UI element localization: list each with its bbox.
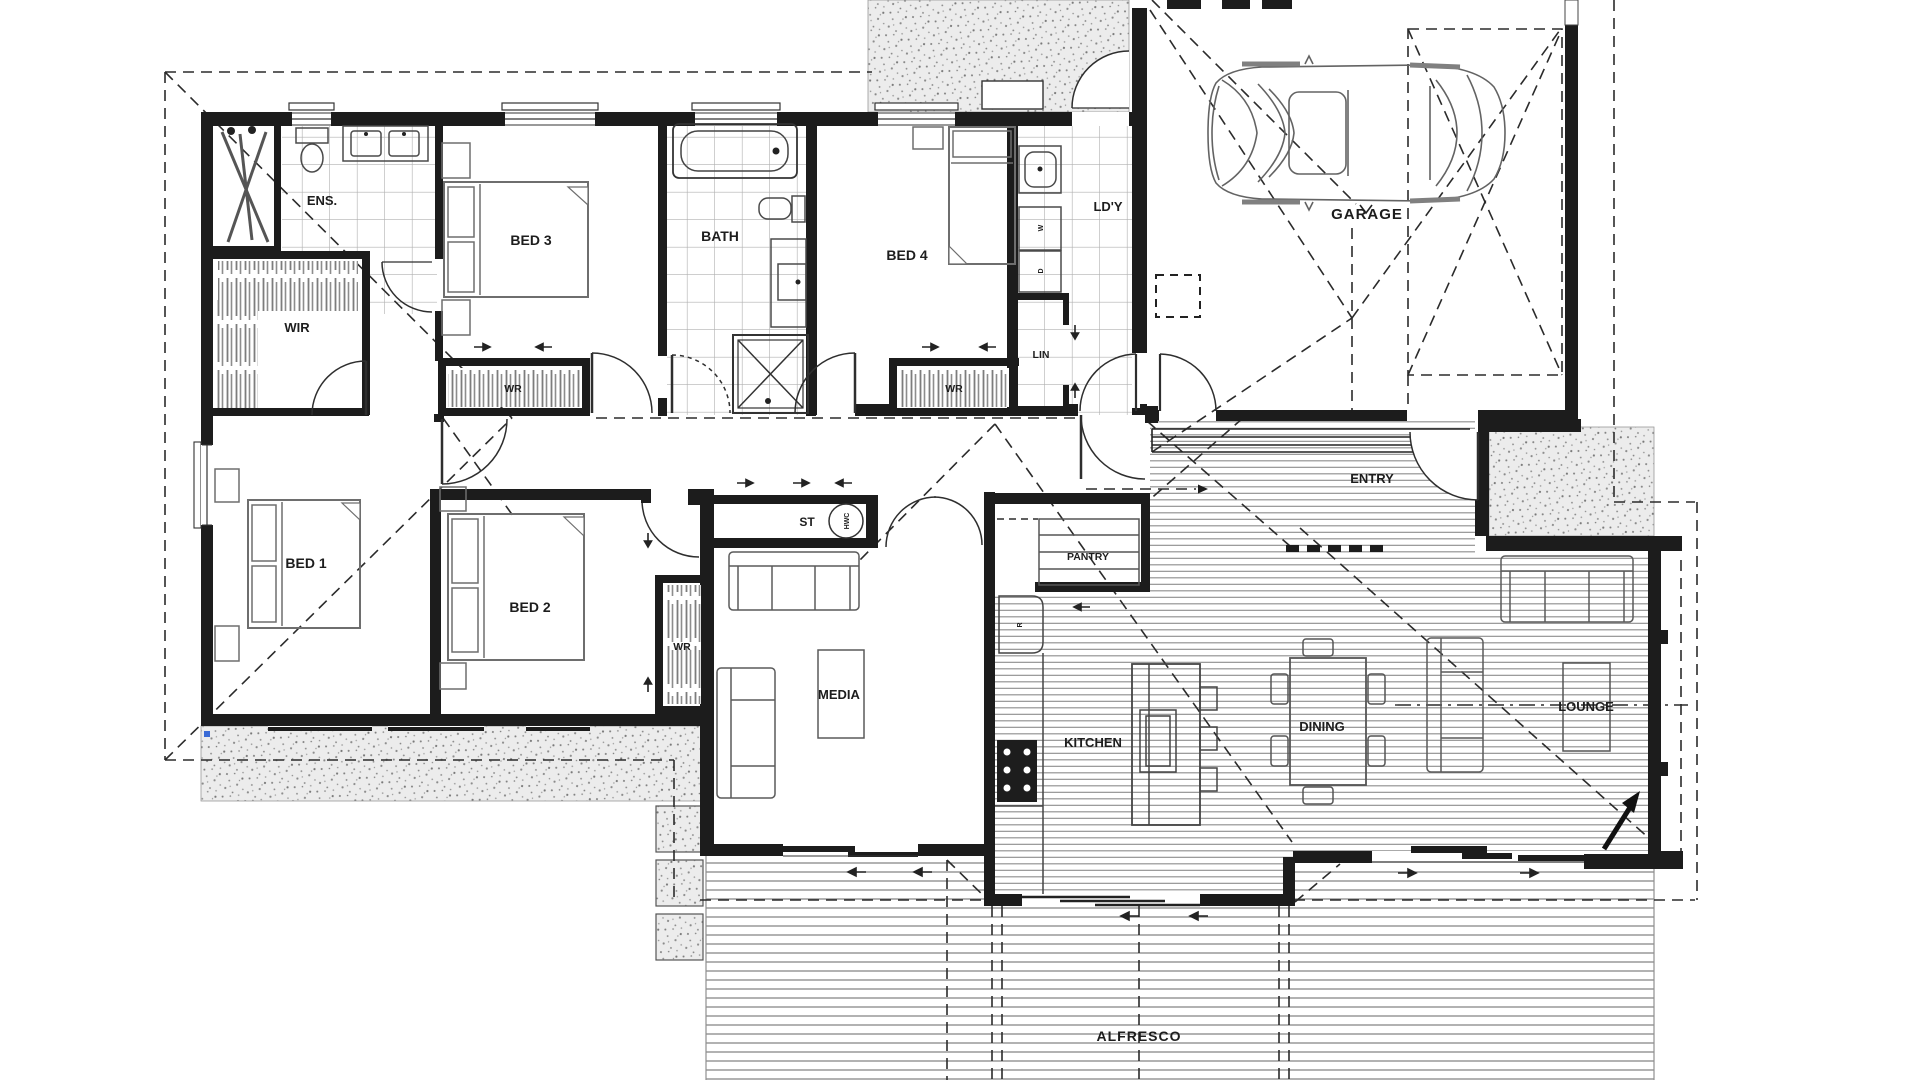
- svg-text:BATH: BATH: [701, 228, 739, 244]
- svg-text:ST: ST: [799, 515, 815, 529]
- svg-text:WR: WR: [673, 641, 691, 653]
- svg-text:LOUNGE: LOUNGE: [1558, 699, 1614, 714]
- svg-text:BED 3: BED 3: [510, 232, 551, 248]
- svg-text:BED 2: BED 2: [509, 599, 550, 615]
- svg-text:WR: WR: [945, 383, 963, 395]
- svg-text:HWC: HWC: [844, 513, 851, 530]
- svg-text:PANTRY: PANTRY: [1067, 551, 1109, 563]
- svg-text:LD'Y: LD'Y: [1093, 199, 1122, 214]
- svg-text:W: W: [1038, 224, 1045, 231]
- svg-text:BED 1: BED 1: [285, 555, 326, 571]
- svg-text:D: D: [1038, 268, 1045, 273]
- svg-text:ALFRESCO: ALFRESCO: [1097, 1028, 1182, 1044]
- svg-text:GARAGE: GARAGE: [1331, 206, 1403, 223]
- svg-text:ENTRY: ENTRY: [1350, 471, 1394, 486]
- svg-text:LIN: LIN: [1033, 349, 1050, 361]
- svg-text:WIR: WIR: [284, 320, 310, 335]
- svg-text:WR: WR: [504, 383, 522, 395]
- svg-text:ENS.: ENS.: [307, 193, 337, 208]
- svg-text:R: R: [1017, 622, 1024, 627]
- svg-text:DINING: DINING: [1299, 719, 1345, 734]
- svg-text:BED 4: BED 4: [886, 247, 927, 263]
- svg-text:KITCHEN: KITCHEN: [1064, 735, 1122, 750]
- svg-text:MEDIA: MEDIA: [818, 687, 861, 702]
